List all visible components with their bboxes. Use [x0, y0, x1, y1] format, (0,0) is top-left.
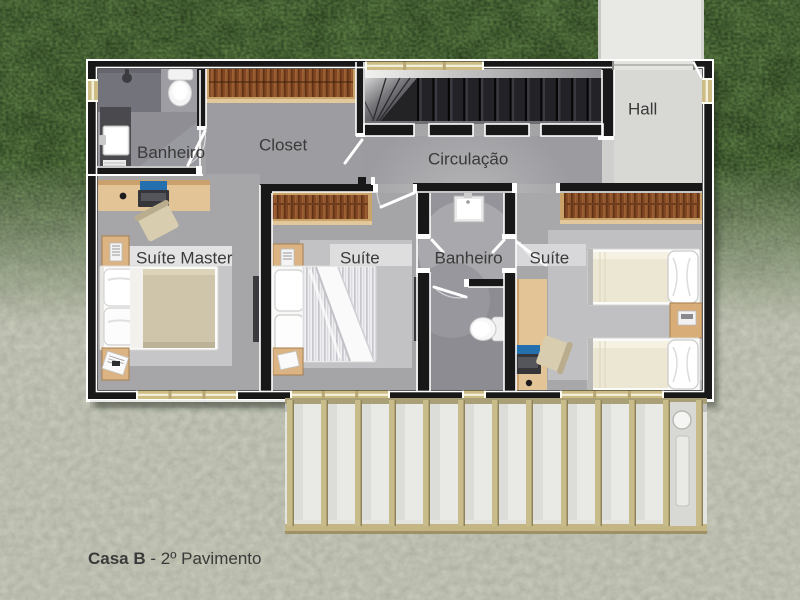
svg-text:Closet: Closet: [259, 136, 307, 155]
svg-text:Banheiro: Banheiro: [137, 143, 205, 162]
svg-text:Suíte Master: Suíte Master: [136, 249, 233, 268]
svg-text:Suíte: Suíte: [530, 249, 570, 268]
svg-text:Banheiro: Banheiro: [435, 249, 503, 268]
svg-text:Circulação: Circulação: [428, 150, 508, 169]
svg-text:Casa B - 2º Pavimento: Casa B - 2º Pavimento: [88, 549, 261, 568]
svg-text:Hall: Hall: [628, 100, 657, 119]
svg-text:Suíte: Suíte: [340, 249, 380, 268]
